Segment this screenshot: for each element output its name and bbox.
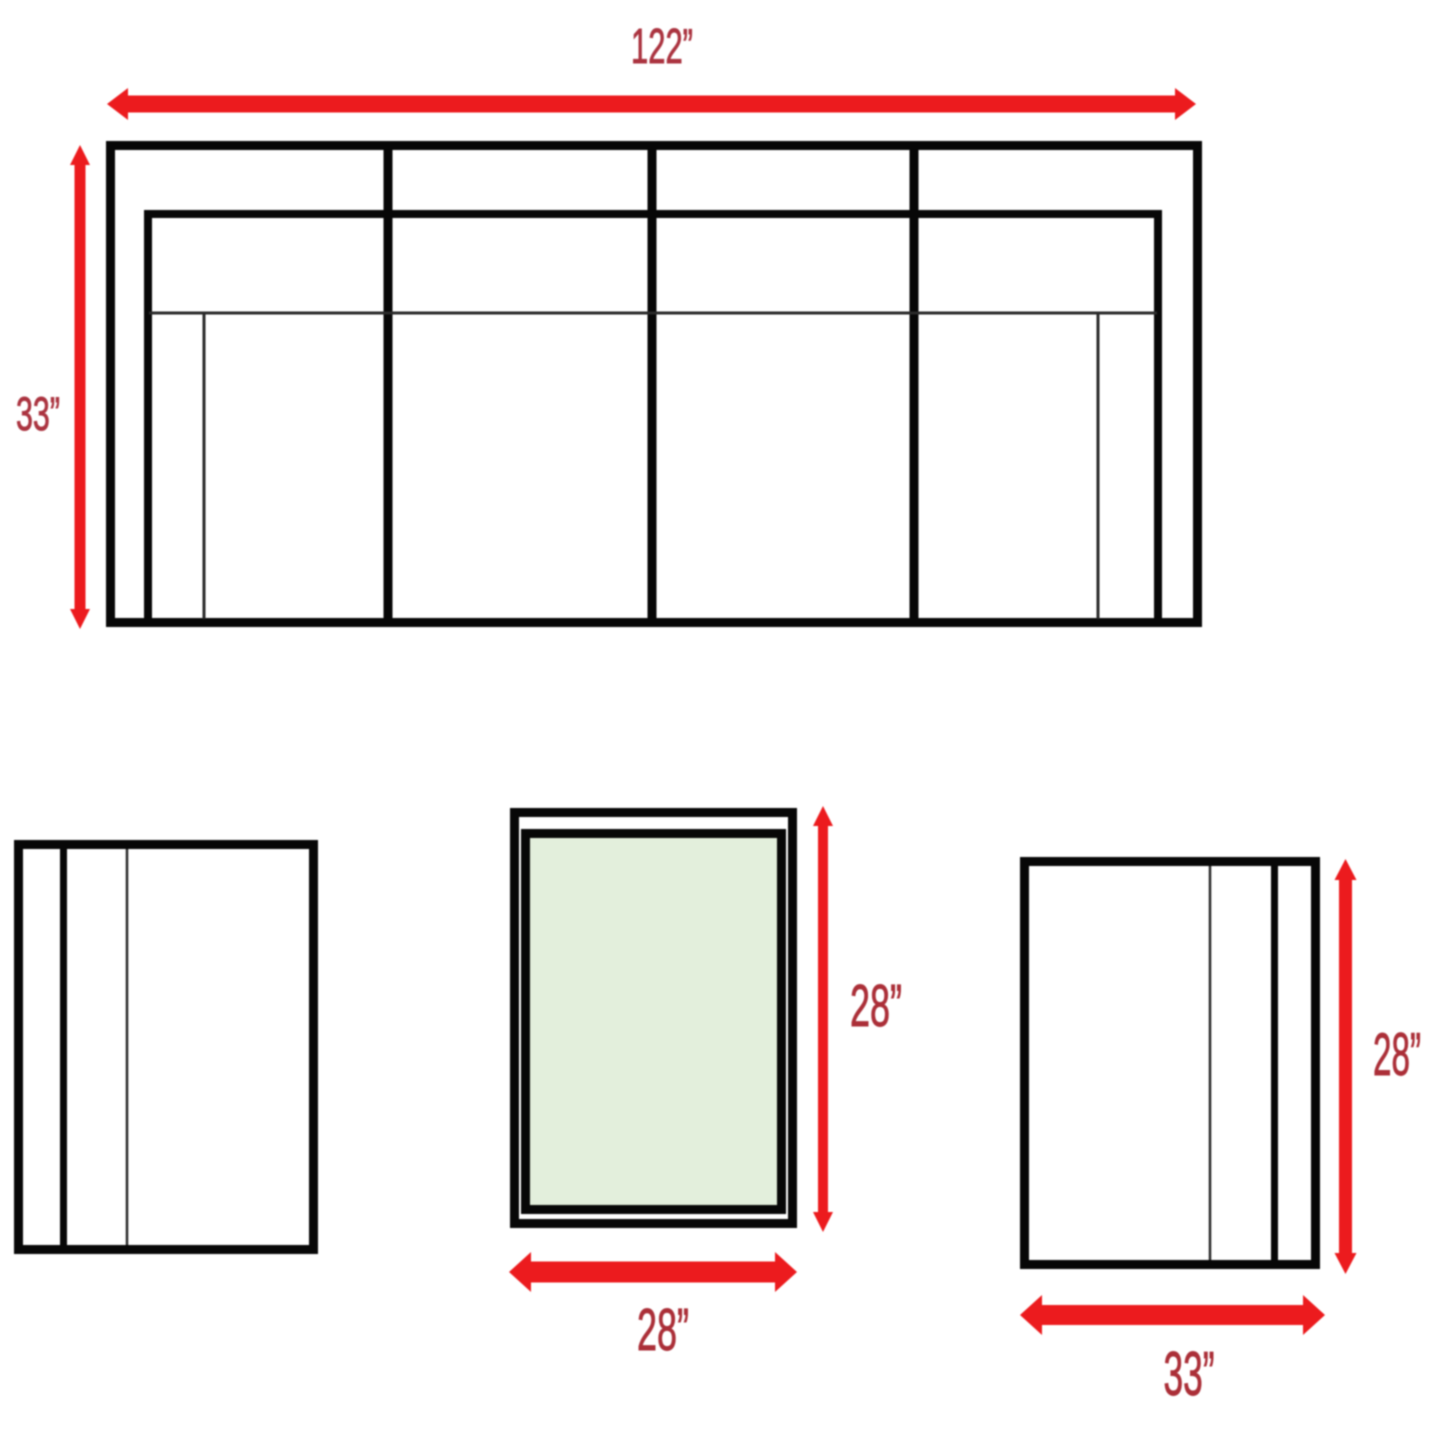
svg-text:28”: 28” (637, 1297, 689, 1363)
svg-text:28”: 28” (1373, 1021, 1421, 1088)
svg-text:122”: 122” (631, 20, 693, 74)
svg-text:33”: 33” (16, 387, 60, 440)
svg-text:28”: 28” (850, 973, 902, 1039)
svg-text:33”: 33” (1164, 1340, 1215, 1409)
